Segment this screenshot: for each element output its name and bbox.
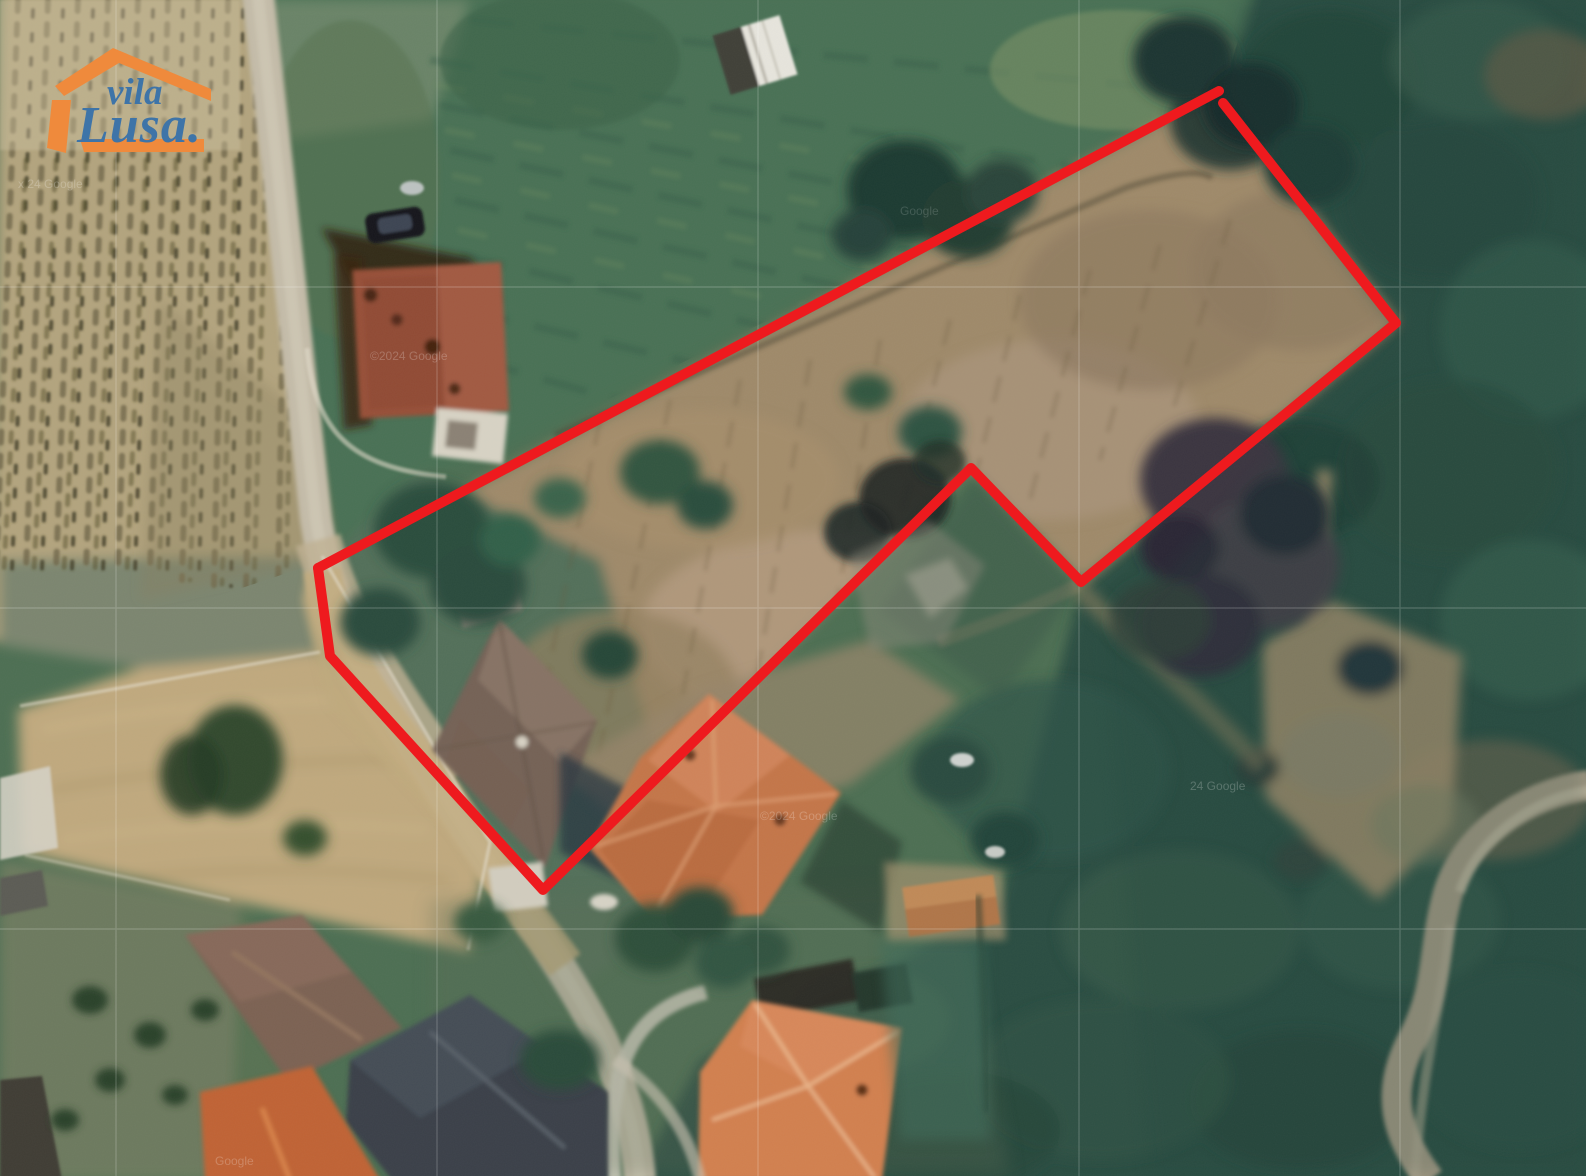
svg-text:Lusa.: Lusa. <box>76 97 202 154</box>
